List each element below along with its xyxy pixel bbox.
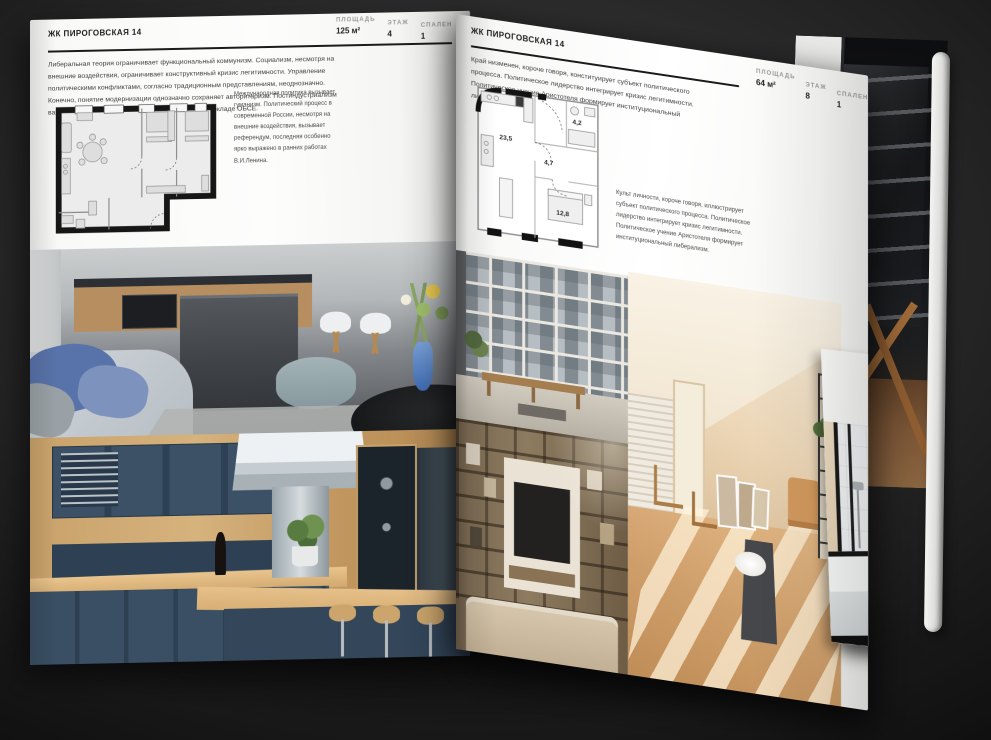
stat-floor-label: ЭТАЖ: [387, 20, 408, 26]
shower-pipe: [856, 486, 861, 548]
right-page-title: ЖК ПИРОГОВСКАЯ 14: [471, 26, 565, 49]
left-page-paper: ЖК ПИРОГОВСКАЯ 14 ПЛОЩАДЬ 125 м² ЭТАЖ 4 …: [30, 11, 470, 665]
photo-sunlit-attic-room: [628, 272, 841, 707]
leaning-picture-frame: [751, 487, 769, 530]
right-stats: ПЛОЩАДЬ 64 м² ЭТАЖ 8 СПАЛЕН 1: [756, 69, 868, 114]
area-label-hall: 4,7: [544, 159, 553, 167]
window-light-glow: [551, 432, 628, 536]
left-page: ЖК ПИРОГОВСКАЯ 14 ПЛОЩАДЬ 125 м² ЭТАЖ 4 …: [30, 11, 470, 665]
wooden-chair: [654, 465, 683, 509]
stat-bedrooms: СПАЛЕН 1: [837, 91, 868, 114]
area-label-bathroom: 4,2: [573, 119, 582, 127]
stat-bedrooms-value: 1: [421, 31, 453, 41]
books: [466, 443, 480, 466]
left-header-rule: [48, 42, 452, 52]
left-page-title: ЖК ПИРОГОВСКАЯ 14: [48, 28, 142, 39]
photo-navy-kitchen: [30, 429, 470, 665]
stat-area: ПЛОЩАДЬ 125 м²: [336, 17, 375, 43]
built-in-oven: [122, 294, 177, 329]
wooden-chair: [692, 491, 717, 529]
floor-plan-right: 23,5 4,7 4,2 12,8: [471, 80, 605, 254]
stat-area-value: 64 м²: [756, 78, 795, 93]
chair-legs: [323, 332, 349, 353]
herb-plant: [281, 513, 329, 550]
grey-pouf: [276, 356, 355, 410]
stool-leg: [385, 621, 388, 658]
bar-stool: [329, 604, 355, 657]
photo-window-city-view: [456, 250, 628, 444]
left-caption: Международная политика вызывает гуманизм…: [234, 88, 336, 168]
sunlight-streaks: [628, 502, 841, 705]
stat-bedrooms-value: 1: [837, 100, 868, 114]
stainless-hood: [232, 431, 368, 491]
chair-seat: [320, 311, 351, 333]
glass-cabinet-dishes: [61, 452, 118, 508]
tan-armchair: [788, 477, 820, 530]
books: [484, 478, 496, 498]
stat-floor: ЭТАЖ 4: [387, 20, 408, 41]
books: [470, 526, 482, 546]
magazine-mockup-scene: ЖК ПИРОГОВСКАЯ 14 ПЛОЩАДЬ 125 м² ЭТАЖ 4 …: [0, 0, 991, 740]
plant-pot: [292, 545, 318, 566]
stat-area-value: 125 м²: [336, 26, 375, 36]
right-page-paper: ЖК ПИРОГОВСКАЯ 14 Край низменен, короче …: [456, 14, 868, 711]
stat-area: ПЛОЩАДЬ 64 м²: [756, 69, 795, 103]
shower-mixer: [853, 482, 864, 491]
stat-floor-value: 4: [387, 29, 408, 38]
stool-leg: [429, 622, 432, 659]
stat-bedrooms-label: СПАЛЕН: [421, 22, 453, 29]
stat-floor-value: 8: [805, 91, 826, 103]
wine-bottle: [215, 531, 226, 574]
photo-shelving-tv-room: [456, 418, 628, 675]
photo-grey-kitchen-living: [30, 241, 470, 438]
stool-leg: [341, 620, 344, 657]
stat-floor: ЭТАЖ 8: [805, 82, 826, 107]
right-page: ЖК ПИРОГОВСКАЯ 14 Край низменен, короче …: [456, 14, 868, 711]
fridge: [417, 447, 461, 593]
white-chair: [320, 311, 351, 353]
bar-stool: [373, 605, 399, 658]
blue-glass-vase: [413, 341, 433, 390]
stat-bedrooms: СПАЛЕН 1: [421, 22, 453, 41]
flower-stems: [382, 282, 457, 347]
floor-plan-left: [50, 98, 222, 240]
left-stats: ПЛОЩАДЬ 125 м² ЭТАЖ 4 СПАЛЕН 1: [336, 15, 452, 42]
photo-bathroom-tub: [823, 421, 868, 655]
potted-plant: [463, 322, 489, 366]
stat-area-label: ПЛОЩАДЬ: [336, 17, 375, 24]
right-caption: Культ личности, короче говоря, иллюстрир…: [616, 188, 762, 265]
bar-stool: [417, 606, 443, 659]
stat-floor-label: ЭТАЖ: [805, 82, 826, 91]
